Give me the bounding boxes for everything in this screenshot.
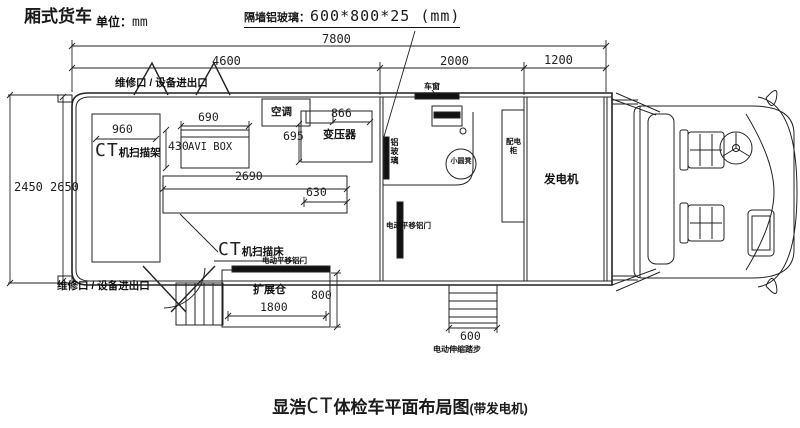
telescopic-steps-label: 电动伸缩踏步	[433, 346, 481, 354]
expansion-door-label: 电动平移铝门	[262, 257, 307, 265]
partition-glass-panel	[384, 137, 389, 179]
dim-bed-length: 2690	[235, 171, 263, 183]
cabinet-outline	[502, 110, 524, 222]
glass-note-label: 隔墙铝玻璃：	[244, 12, 310, 24]
caption-suffix: (带发电机)	[469, 402, 527, 416]
partition-door-label: 电动平移铝门	[386, 222, 431, 230]
unit-value: mm	[132, 15, 148, 30]
cabinet-label: 配电柜	[505, 138, 522, 155]
caption-brand: 显浩	[272, 398, 306, 417]
dim-ct-room: 4600	[212, 55, 241, 67]
expansion-bay-label: 扩展仓	[253, 285, 286, 296]
partition-glass-label: 铝玻璃	[390, 138, 398, 165]
dim-steps-width: 600	[460, 331, 481, 343]
dim-overall: 7800	[322, 33, 351, 45]
front-bumper	[758, 97, 797, 287]
truck-cab-drawing	[612, 90, 797, 293]
stool-label: 小圆凳	[447, 158, 475, 165]
ct-gantry-prefix: CT	[95, 140, 119, 161]
unit-label: 单位：	[96, 15, 132, 29]
aircon-label: 空调	[271, 107, 292, 118]
glass-note: 隔墙铝玻璃：600*800*25 (mm)	[244, 9, 460, 28]
cab-window-bar	[415, 93, 459, 99]
floor-plan-drawing: 厢式货车 单位：mm 隔墙铝玻璃：600*800*25 (mm) 7800 46…	[0, 0, 800, 428]
dim-trans-width: 866	[331, 108, 352, 120]
dim-body-height: 2450	[14, 181, 43, 193]
expansion-door-bar	[232, 266, 330, 272]
dim-bed-head: 630	[306, 187, 327, 199]
access-label-top: 维修口 / 设备进出口	[115, 78, 208, 89]
mirror-blade-top	[766, 90, 777, 105]
console-desk-icon	[432, 106, 466, 134]
caption-ct: CT	[306, 394, 333, 418]
passenger-seat	[680, 203, 724, 243]
dim-expansion-width: 1800	[260, 302, 288, 314]
dim-avi-width: 690	[198, 112, 219, 124]
dim-avi-height: 430	[168, 141, 189, 153]
rear-bench	[648, 114, 674, 264]
driver-seat	[680, 130, 724, 170]
ct-gantry-outline	[92, 114, 160, 262]
mirror-blade-bottom	[766, 278, 777, 293]
ct-bed-prefix: CT	[218, 239, 242, 260]
ct-gantry-text: 机扫描架	[119, 147, 161, 159]
drawing-caption: 显浩CT体检车平面布局图(带发电机)	[0, 393, 800, 418]
dim-op-room: 2000	[440, 55, 469, 67]
drawing-title: 厢式货车	[24, 8, 92, 25]
dim-gen-room: 1200	[544, 54, 573, 66]
transformer-label: 变压器	[323, 130, 356, 141]
rear-stairs	[176, 283, 223, 325]
dim-inner-height: 2650	[50, 181, 79, 193]
partition-sliding-door	[397, 202, 403, 258]
generator-label: 发电机	[544, 175, 579, 187]
floor-plan-linework	[0, 0, 800, 428]
dim-expansion-depth: 800	[311, 290, 332, 302]
dim-gantry-width: 960	[112, 124, 133, 136]
dim-trans-height: 695	[283, 131, 304, 143]
caption-text: 体检车平面布局图	[333, 398, 469, 417]
steering-wheel	[720, 132, 752, 164]
avi-box-label: AVI BOX	[188, 142, 232, 153]
operator-stairs	[449, 285, 497, 323]
unit-note: 单位：mm	[96, 14, 148, 30]
center-console	[748, 210, 774, 256]
ct-gantry-label: CT机扫描架	[95, 142, 161, 160]
access-label-bottom: 维修口 / 设备进出口	[57, 281, 150, 292]
cab-window-label: 车窗	[424, 83, 440, 91]
glass-note-value: 600*800*25 (mm)	[310, 7, 460, 25]
partition-walls	[380, 97, 607, 281]
